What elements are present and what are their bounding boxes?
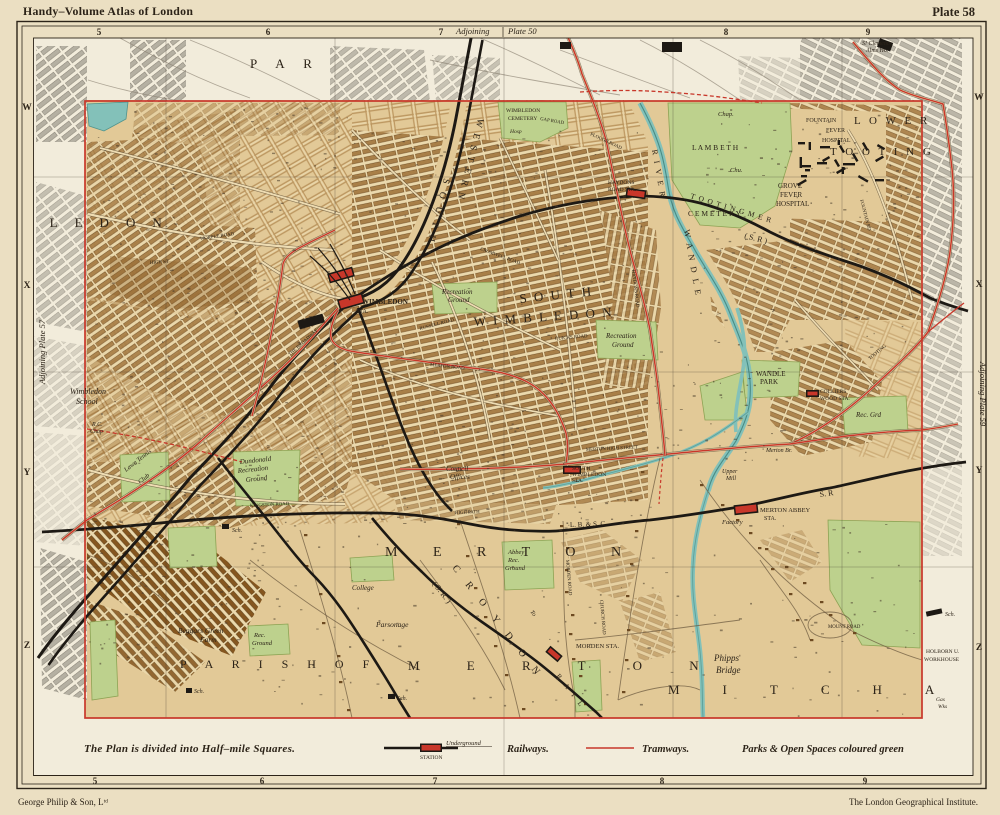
svg-text:MERTON ABBEY: MERTON ABBEY <box>760 507 811 514</box>
svg-text:HAYDONS: HAYDONS <box>608 180 634 186</box>
svg-text:Upper: Upper <box>722 469 738 475</box>
svg-text:Z: Z <box>976 643 982 653</box>
svg-text:Ground: Ground <box>448 296 470 304</box>
svg-text:George Philip & Son, Lᵗᵈ: George Philip & Son, Lᵗᵈ <box>18 797 108 807</box>
svg-text:C E M E T E R Y: C E M E T E R Y <box>688 209 742 218</box>
svg-text:Adjoining Plate 57: Adjoining Plate 57 <box>37 319 47 385</box>
svg-text:6: 6 <box>260 776 265 786</box>
svg-text:Sch.: Sch. <box>232 528 242 534</box>
svg-text:Handy–Volume Atlas of Londo: Handy–Volume Atlas of London <box>23 4 193 18</box>
svg-text:The London Geographical Instit: The London Geographical Institute. <box>849 797 978 807</box>
svg-text:X: X <box>24 281 31 291</box>
svg-text:HOSPITAL: HOSPITAL <box>822 138 851 144</box>
svg-text:Recreation: Recreation <box>441 288 473 296</box>
svg-text:Mill: Mill <box>725 476 736 482</box>
svg-text:WOOD STA.: WOOD STA. <box>820 396 850 402</box>
svg-text:W: W <box>974 93 984 103</box>
svg-text:6: 6 <box>266 27 271 37</box>
svg-text:M E R T O N: M E R T O N <box>408 658 721 673</box>
svg-text:Farm: Farm <box>199 635 217 644</box>
svg-text:WORKHOUSE: WORKHOUSE <box>924 657 960 663</box>
svg-text:Rec. Grd: Rec. Grd <box>855 411 882 419</box>
svg-text:Factory: Factory <box>721 519 743 526</box>
svg-text:P A R I S H O F: P A R I S H O F <box>180 657 377 671</box>
svg-text:L O W E R: L O W E R <box>854 115 930 127</box>
svg-text:Chap: Chap <box>90 429 103 435</box>
svg-text:Rec.: Rec. <box>253 632 266 639</box>
svg-text:HOLBORN U.: HOLBORN U. <box>926 649 960 655</box>
svg-text:School: School <box>76 397 99 406</box>
svg-text:W: W <box>22 103 32 113</box>
svg-text:COLLIERS: COLLIERS <box>820 389 846 395</box>
svg-text:STA.: STA. <box>764 516 777 522</box>
svg-text:X: X <box>976 280 983 290</box>
svg-text:STA.: STA. <box>572 478 584 484</box>
svg-text:Chap.: Chap. <box>718 111 734 118</box>
svg-text:L. B. & S. C.: L. B. & S. C. <box>570 520 607 529</box>
svg-text:Adjoining Plate 59: Adjoining Plate 59 <box>978 361 988 427</box>
svg-text:9: 9 <box>863 776 868 786</box>
svg-text:MITCHA: MITCHA <box>668 682 977 697</box>
svg-text:P A R: P A R <box>250 56 320 71</box>
svg-text:8: 8 <box>724 27 729 37</box>
svg-text:Y: Y <box>24 468 31 478</box>
svg-text:College: College <box>352 584 374 592</box>
svg-text:MOUNT ROAD: MOUNT ROAD <box>828 625 861 630</box>
svg-text:S! Clements: S! Clements <box>862 41 891 47</box>
svg-text:Hosp: Hosp <box>509 129 522 135</box>
svg-text:Rec.: Rec. <box>507 557 520 564</box>
svg-text:The Plan is divided into Half–: The Plan is divided into Half–mile Squar… <box>84 743 295 755</box>
svg-text:ROAD STA.: ROAD STA. <box>608 187 637 193</box>
svg-text:Alms Ho.: Alms Ho. <box>865 48 888 54</box>
svg-text:STA.: STA. <box>356 309 369 315</box>
svg-text:HOSPITAL: HOSPITAL <box>776 200 809 208</box>
svg-text:Ground: Ground <box>505 565 526 572</box>
svg-text:Sch.: Sch. <box>194 689 204 695</box>
svg-text:Sch.: Sch. <box>945 612 955 618</box>
svg-text:GROVE: GROVE <box>778 182 802 190</box>
svg-text:MORDEN STA.: MORDEN STA. <box>576 643 620 650</box>
svg-text:PARK: PARK <box>760 378 778 386</box>
svg-text:Sch.: Sch. <box>397 696 407 702</box>
svg-text:Wks: Wks <box>938 704 947 710</box>
svg-text:5: 5 <box>97 27 102 37</box>
svg-text:Parsonage: Parsonage <box>375 620 409 629</box>
svg-text:Bridge: Bridge <box>716 665 741 675</box>
svg-text:Beggars Green: Beggars Green <box>178 626 224 635</box>
svg-text:5: 5 <box>93 776 98 786</box>
svg-text:Tramways.: Tramways. <box>642 744 689 755</box>
svg-text:Adjoining: Adjoining <box>455 26 490 36</box>
svg-text:T O O T I N G: T O O T I N G <box>830 146 934 158</box>
svg-text:STATION: STATION <box>420 755 443 761</box>
svg-text:Underground: Underground <box>446 740 482 747</box>
svg-text:Parks & Open Spaces coloured g: Parks & Open Spaces coloured green <box>742 744 904 755</box>
svg-text:FEVER: FEVER <box>826 128 845 134</box>
svg-text:Abbey: Abbey <box>507 549 524 556</box>
svg-text:L A M B E T H: L A M B E T H <box>692 143 739 152</box>
svg-text:WANDLE: WANDLE <box>756 370 786 378</box>
svg-text:WIMBLEDON: WIMBLEDON <box>506 108 540 114</box>
svg-text:Phipps: Phipps <box>713 653 739 663</box>
svg-text:CEMETERY: CEMETERY <box>508 116 537 122</box>
svg-text:Ground: Ground <box>252 640 273 647</box>
svg-text:Plate 58: Plate 58 <box>932 5 975 19</box>
svg-text:8: 8 <box>660 776 665 786</box>
svg-text:Gas: Gas <box>936 697 945 703</box>
svg-text:9: 9 <box>866 27 871 37</box>
svg-text:Offices: Offices <box>450 473 470 481</box>
svg-text:R.C.: R.C. <box>91 422 103 428</box>
svg-text:Y: Y <box>976 466 983 476</box>
svg-text:Railways.: Railways. <box>506 744 549 755</box>
svg-text:Z: Z <box>24 641 30 651</box>
svg-text:WIMBLEDON: WIMBLEDON <box>362 298 408 306</box>
svg-text:Ground: Ground <box>612 341 634 349</box>
svg-text:FEVER: FEVER <box>780 191 803 199</box>
svg-text:7: 7 <box>433 776 438 786</box>
svg-text:BLEDON: BLEDON <box>24 215 179 230</box>
svg-text:Recreation: Recreation <box>605 332 637 340</box>
svg-text:FOUNTAIN: FOUNTAIN <box>806 118 837 124</box>
svg-text:HIGH PATH: HIGH PATH <box>455 510 480 516</box>
svg-text:7: 7 <box>439 27 444 37</box>
svg-text:Council: Council <box>446 465 468 473</box>
svg-text:Chu.: Chu. <box>730 167 743 174</box>
svg-text:Merton Br.: Merton Br. <box>765 448 792 454</box>
svg-text:Plate 50: Plate 50 <box>507 26 537 36</box>
svg-text:Wimbledon: Wimbledon <box>70 387 106 396</box>
